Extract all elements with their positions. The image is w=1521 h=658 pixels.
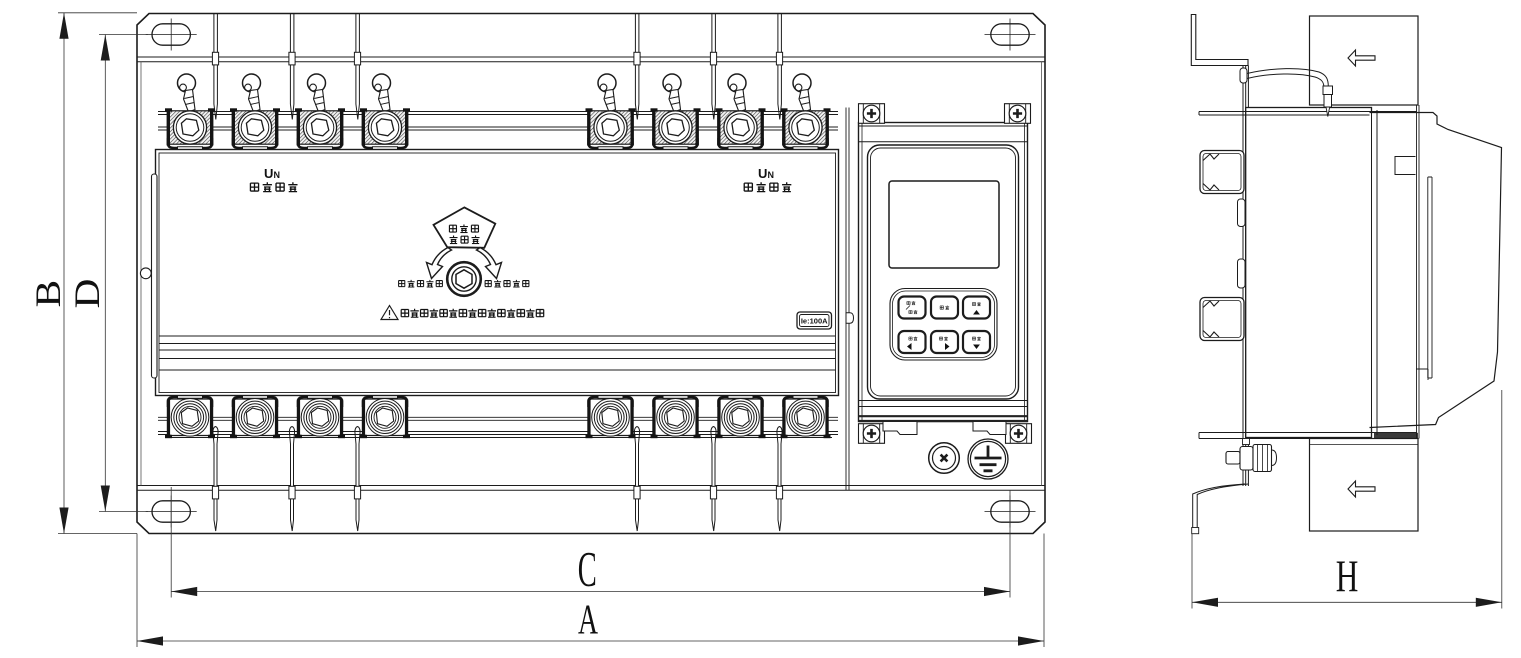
svg-text:D: D (68, 279, 108, 309)
svg-text:C: C (578, 541, 597, 596)
svg-text:A: A (578, 596, 598, 643)
svg-text:Ie:100A: Ie:100A (801, 316, 828, 325)
svg-text:H: H (1336, 551, 1359, 602)
svg-text:B: B (28, 280, 68, 308)
